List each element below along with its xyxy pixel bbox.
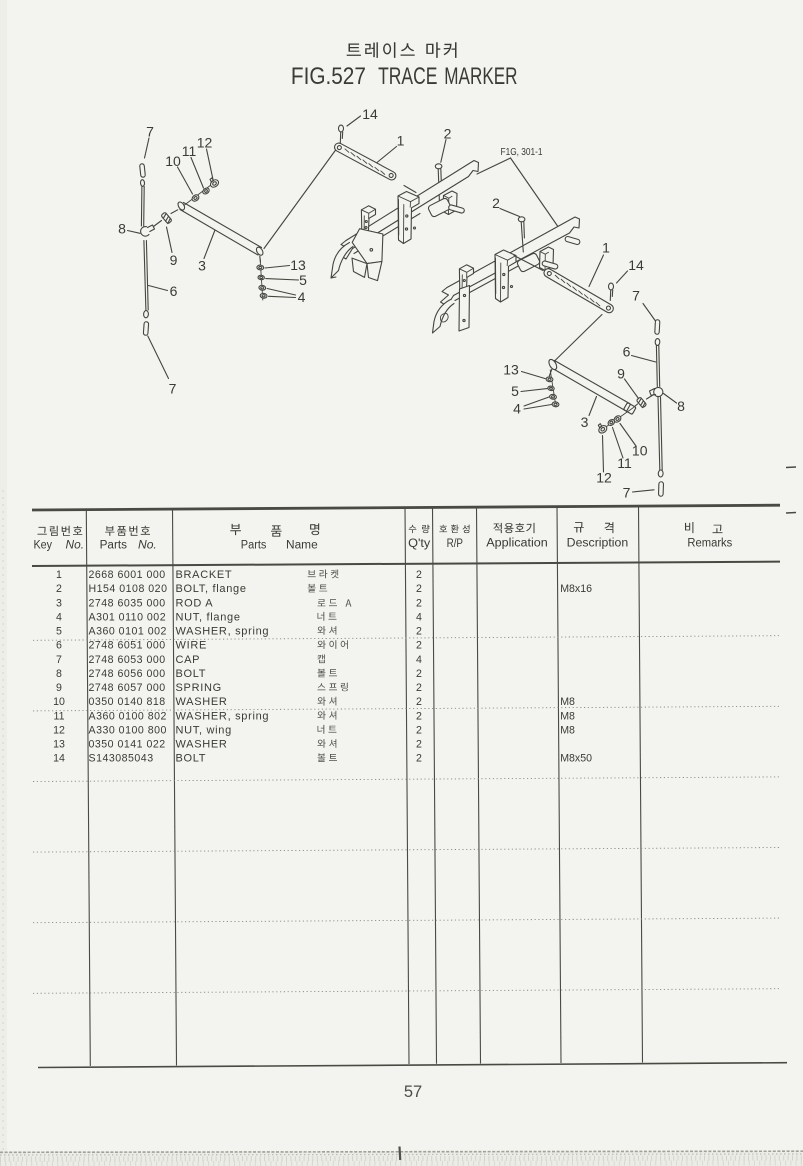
svg-text:13: 13	[53, 739, 65, 751]
svg-text:ROD A: ROD A	[176, 597, 214, 609]
svg-text:2: 2	[416, 626, 422, 638]
svg-text:NUT, wing: NUT, wing	[176, 724, 232, 736]
svg-text:Q'ty: Q'ty	[408, 538, 430, 550]
svg-text:2: 2	[416, 583, 422, 595]
svg-text:A301 0110 002: A301 0110 002	[89, 611, 167, 623]
svg-text:A360 0101 002: A360 0101 002	[89, 626, 167, 638]
svg-text:2: 2	[416, 640, 422, 652]
svg-text:11: 11	[54, 710, 65, 722]
svg-text:M8: M8	[560, 696, 575, 708]
svg-text:2: 2	[416, 724, 422, 736]
svg-text:6: 6	[170, 283, 178, 299]
svg-text:5: 5	[299, 272, 307, 288]
svg-text:7: 7	[632, 288, 640, 304]
svg-text:FIG.527: FIG.527	[291, 63, 366, 90]
svg-text:0350 0140 818: 0350 0140 818	[89, 696, 166, 708]
svg-text:1: 1	[397, 133, 405, 149]
svg-text:5: 5	[511, 383, 519, 399]
svg-text:TRACE: TRACE	[378, 63, 437, 90]
svg-text:No.: No.	[138, 540, 157, 552]
svg-text:Name: Name	[286, 540, 318, 552]
svg-text:8: 8	[677, 398, 685, 414]
svg-text:M8x16: M8x16	[560, 583, 592, 595]
svg-text:7: 7	[146, 124, 154, 140]
svg-text:7: 7	[623, 485, 631, 501]
svg-text:11: 11	[617, 455, 632, 471]
svg-text:2: 2	[416, 682, 422, 694]
svg-text:7: 7	[169, 381, 177, 397]
svg-text:0350 0141 022: 0350 0141 022	[89, 739, 166, 751]
svg-text:2: 2	[416, 569, 422, 581]
svg-text:SPRING: SPRING	[176, 682, 222, 694]
svg-text:WIRE: WIRE	[176, 640, 208, 652]
svg-text:4: 4	[416, 611, 422, 623]
svg-text:9: 9	[56, 682, 62, 694]
svg-text:F1G, 301-1: F1G, 301-1	[501, 147, 543, 158]
svg-text:2: 2	[416, 753, 422, 765]
svg-text:A330 0100 800: A330 0100 800	[89, 724, 167, 736]
svg-text:CAP: CAP	[176, 654, 201, 666]
svg-text:1: 1	[56, 569, 62, 581]
svg-text:2: 2	[492, 195, 500, 211]
svg-text:10: 10	[165, 153, 181, 169]
svg-text:3: 3	[198, 258, 206, 274]
svg-text:9: 9	[170, 252, 178, 268]
svg-text:BOLT: BOLT	[176, 668, 207, 680]
svg-text:2668 6001 000: 2668 6001 000	[89, 569, 166, 581]
svg-text:14: 14	[362, 106, 378, 122]
svg-text:H154 0108 020: H154 0108 020	[89, 583, 168, 595]
svg-text:8: 8	[118, 221, 126, 237]
svg-text:M8: M8	[560, 710, 575, 722]
svg-text:WASHER: WASHER	[176, 739, 228, 751]
svg-text:2: 2	[416, 739, 422, 751]
svg-text:4: 4	[298, 289, 306, 305]
svg-text:2748 6053 000: 2748 6053 000	[89, 654, 166, 666]
svg-text:WASHER, spring: WASHER, spring	[176, 710, 270, 722]
svg-text:4: 4	[416, 654, 422, 666]
svg-text:Application: Application	[486, 538, 548, 550]
svg-text:2748 6056 000: 2748 6056 000	[89, 668, 166, 680]
svg-text:14: 14	[628, 257, 644, 273]
svg-text:MARKER: MARKER	[444, 63, 517, 90]
svg-text:9: 9	[617, 366, 625, 382]
svg-text:14: 14	[53, 753, 65, 765]
svg-text:7: 7	[56, 654, 62, 666]
svg-text:6: 6	[623, 344, 631, 360]
svg-text:No.: No.	[66, 540, 85, 552]
svg-text:2: 2	[416, 597, 422, 609]
svg-text:A360 0100 802: A360 0100 802	[89, 710, 167, 722]
svg-text:S143085043: S143085043	[89, 753, 154, 765]
svg-text:WASHER: WASHER	[176, 696, 228, 708]
svg-text:BOLT: BOLT	[176, 753, 207, 765]
svg-text:NUT, flange: NUT, flange	[176, 611, 241, 623]
svg-text:1: 1	[602, 240, 610, 256]
svg-text:M8x50: M8x50	[560, 753, 592, 765]
svg-text:10: 10	[53, 696, 65, 708]
svg-text:Remarks: Remarks	[687, 538, 732, 550]
svg-text:BOLT, flange: BOLT, flange	[176, 583, 247, 595]
svg-text:57: 57	[404, 1083, 422, 1101]
svg-text:13: 13	[503, 362, 519, 378]
svg-text:8: 8	[56, 668, 62, 680]
svg-text:2: 2	[416, 668, 422, 680]
svg-text:2748 6057 000: 2748 6057 000	[89, 682, 166, 694]
svg-text:13: 13	[290, 257, 306, 273]
svg-text:Key: Key	[34, 540, 53, 552]
svg-text:WASHER, spring: WASHER, spring	[176, 626, 270, 638]
svg-text:12: 12	[197, 135, 213, 151]
svg-text:10: 10	[632, 443, 648, 459]
svg-text:3: 3	[581, 414, 589, 430]
svg-text:BRACKET: BRACKET	[176, 569, 233, 581]
svg-text:Parts: Parts	[241, 540, 267, 552]
svg-text:6: 6	[56, 640, 62, 652]
svg-text:2: 2	[416, 710, 422, 722]
svg-text:11: 11	[182, 143, 197, 159]
svg-text:2748 6051 000: 2748 6051 000	[89, 640, 166, 652]
svg-text:2: 2	[56, 583, 62, 595]
svg-text:4: 4	[56, 611, 62, 623]
svg-text:12: 12	[53, 724, 65, 736]
svg-text:M8: M8	[560, 724, 575, 736]
svg-text:4: 4	[513, 401, 521, 417]
svg-text:12: 12	[596, 470, 612, 486]
svg-text:Parts: Parts	[100, 540, 128, 552]
svg-text:2748 6035 000: 2748 6035 000	[89, 597, 166, 609]
svg-text:Description: Description	[567, 538, 629, 550]
svg-text:3: 3	[56, 597, 62, 609]
svg-text:R/P: R/P	[447, 538, 464, 550]
svg-text:5: 5	[56, 626, 62, 638]
svg-text:2: 2	[444, 126, 452, 142]
svg-text:2: 2	[416, 696, 422, 708]
